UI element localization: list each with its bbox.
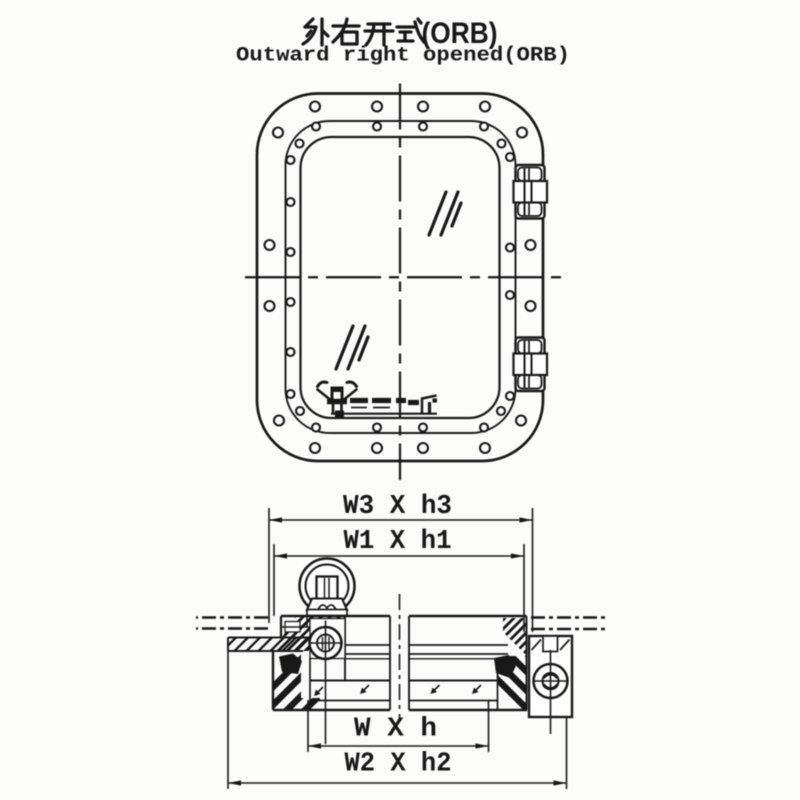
- svg-text:W X h: W X h: [354, 715, 437, 745]
- svg-text:W2 X h2: W2 X h2: [345, 750, 452, 780]
- svg-text:Outward right opened(ORB): Outward right opened(ORB): [236, 45, 570, 68]
- svg-text:W1 X h1: W1 X h1: [344, 527, 452, 557]
- svg-text:W3 X h3: W3 X h3: [343, 492, 452, 522]
